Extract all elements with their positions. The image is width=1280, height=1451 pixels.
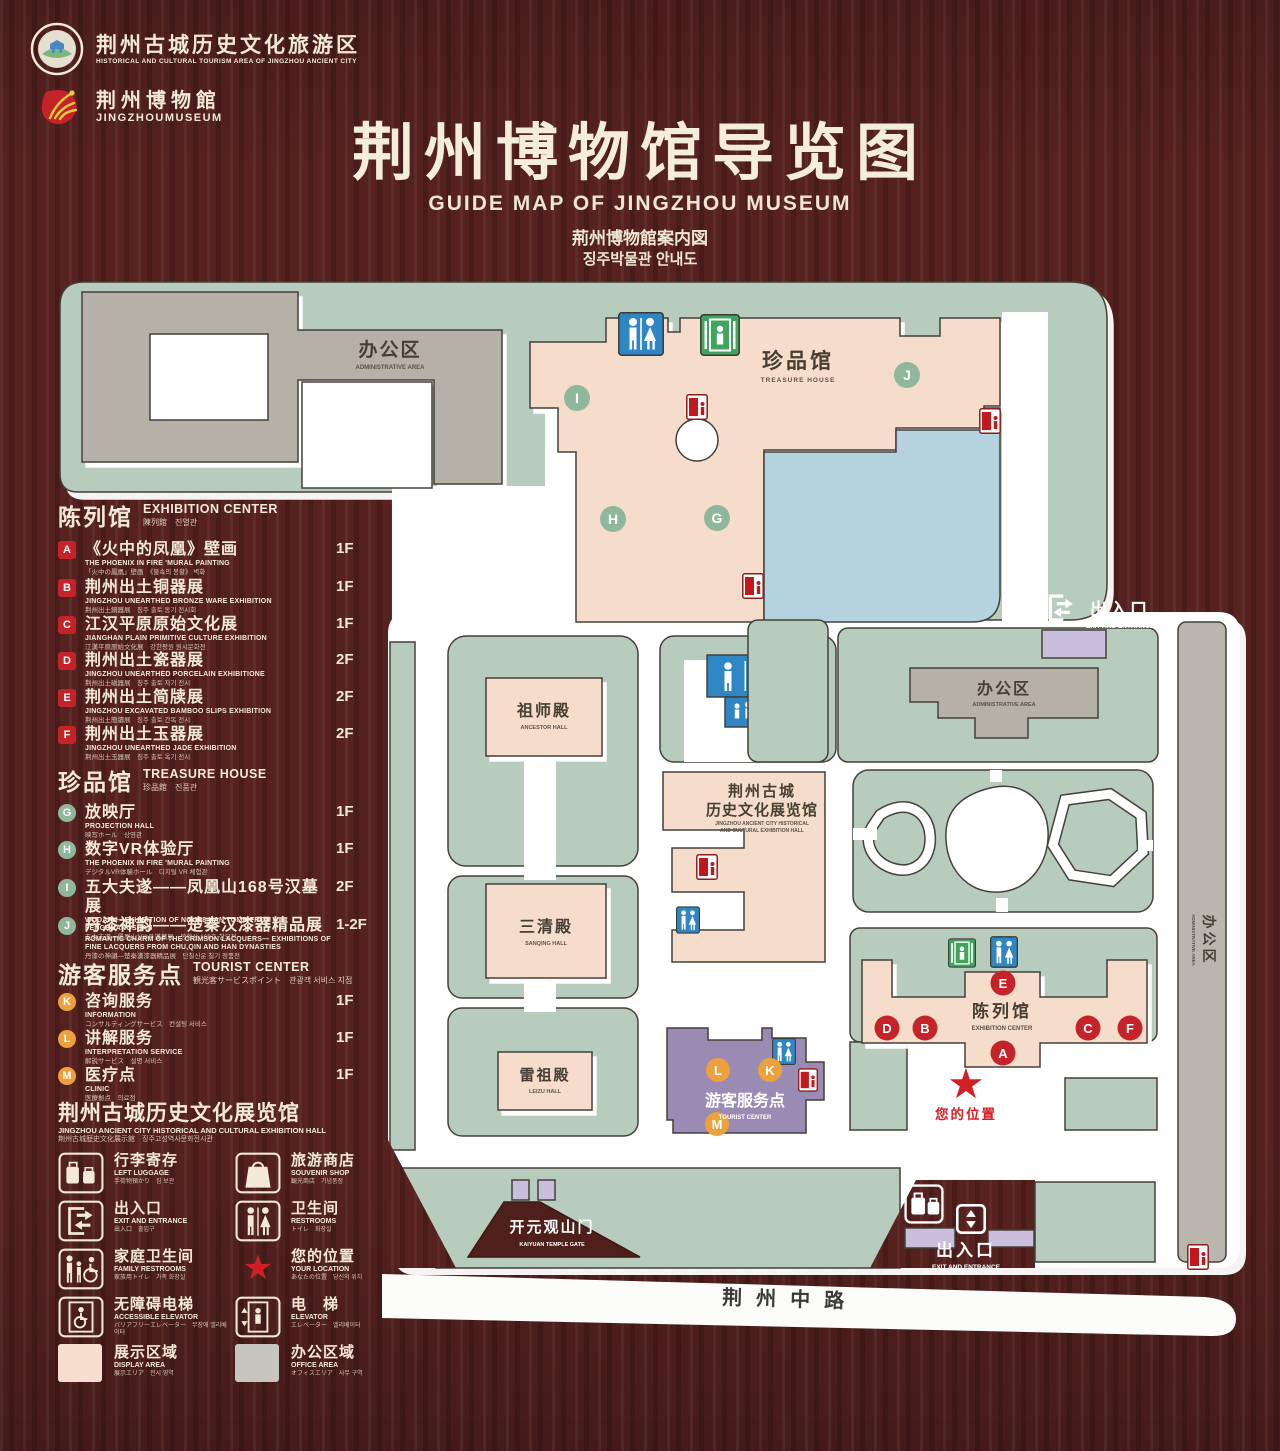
icon-sub: 手荷物預かり 짐 보관 (114, 1179, 228, 1186)
item-floor: 1F (336, 1066, 354, 1083)
museum-logo: 荆州博物館 JINGZHOUMUSEUM (36, 84, 223, 130)
item-text: 丹漆神韵——楚秦汉漆器精品展ROMANTIC CHARM OF THE CRIM… (85, 916, 331, 960)
legend-item-h: H 数字VR体验厅THE PHOENIX IN FIRE 'MURAL PAIN… (58, 840, 406, 876)
label-leizu-zh: 雷祖殿 (519, 1066, 570, 1084)
item-text: 咨询服务INFORMATIONコンサルティングサービス 컨설팅 서비스 (85, 992, 331, 1028)
elevator-icon-treasure-3 (743, 574, 763, 598)
label-tourist-en: TOURIST CENTER (719, 1115, 772, 1121)
item-en: THE PHOENIX IN FIRE 'MURAL PAINTING (85, 560, 331, 568)
item-floor: 2F (336, 878, 354, 895)
badge-k: K (58, 993, 76, 1011)
marker-G: G (704, 505, 730, 531)
museum-bird-emblem-icon (36, 84, 84, 130)
svg-text:G: G (712, 510, 723, 526)
legend-item-g: G 放映厅PROJECTION HALL映写ホール 상영관 1F (58, 803, 406, 839)
icon-zh: 家庭卫生间 (114, 1248, 228, 1266)
icon-en: EXIT AND ENTRANCE (114, 1218, 228, 1226)
item-text: 放映厅PROJECTION HALL映写ホール 상영관 (85, 803, 331, 839)
green-excenter-left (850, 1042, 907, 1130)
legend-item-a: A 《火中的凤凰》壁画THE PHOENIX IN FIRE 'MURAL PA… (58, 540, 406, 576)
svg-text:C: C (1083, 1021, 1093, 1036)
section-title-zh: 陈列馆 (58, 498, 133, 532)
marker-B: B (913, 1016, 938, 1041)
svg-text:F: F (1126, 1021, 1134, 1036)
label-admin-top-en: ADMINISTRATIVE AREA (356, 365, 426, 371)
elevator-icon-treasure-2 (980, 409, 1000, 433)
restroom-icon (235, 1200, 281, 1242)
legend-office-area: 办公区域OFFICE AREAオフィスエリア 사무 구역 (235, 1344, 405, 1378)
tourism-area-logo: 荆州古城历史文化旅游区 HISTORICAL AND CULTURAL TOUR… (30, 22, 360, 76)
item-en: ROMANTIC CHARM OF THE CRIMSON LACQUERS— … (85, 936, 331, 952)
icon-en: OFFICE AREA (291, 1362, 405, 1370)
icon-zh: 卫生间 (291, 1200, 405, 1218)
restroom-icon-hall (677, 907, 700, 933)
legend-panel: 陈列馆 EXHIBITION CENTER 陳列館 진열관 A 《火中的凤凰》壁… (58, 498, 406, 1398)
item-sub: 荆州出土玉器展 징주 출토 옥기 전시 (85, 754, 331, 761)
page-subtitle-kr: 징주박물관 안내도 (250, 248, 1030, 269)
item-text: 荆州出土铜器展JINGZHOU UNEARTHED BRONZE WARE EX… (85, 578, 331, 614)
svg-text:H: H (608, 511, 618, 527)
badge-e: E (58, 689, 76, 707)
legend-accessible-elevator: 无障碍电梯ACCESSIBLE ELEVATORバリアフリーエレベーター 무장애… (58, 1296, 228, 1337)
svg-text:ADMINISTRATIVE AREA: ADMINISTRATIVE AREA (1191, 914, 1196, 967)
label-leizu-en: LEIZU HALL (529, 1089, 562, 1095)
item-text: 江汉平原原始文化展JIANGHAN PLAIN PRIMITIVE CULTUR… (85, 615, 331, 651)
your-location-star-icon: ★ (235, 1248, 281, 1290)
icon-en: YOUR LOCATION (291, 1266, 405, 1274)
elevator-icon-treasure-1 (687, 395, 707, 419)
section-title-side: TREASURE HOUSE 珍品館 진품관 (143, 763, 267, 793)
label-hall-zh2: 历史文化展览馆 (706, 801, 818, 819)
item-en: JINGZHOU UNEARTHED BRONZE WARE EXHIBITIO… (85, 598, 331, 606)
item-floor: 2F (336, 688, 354, 705)
green-excenter-right (1065, 1078, 1157, 1130)
luggage-icon (58, 1152, 104, 1194)
entrance-gate-top (1042, 630, 1106, 658)
page-subtitle-jp: 荊州博物館案内図 (250, 224, 1030, 249)
legend-souvenir-shop: 旅游商店SOUVENIR SHOP観光商店 기념품점 (235, 1152, 405, 1186)
icon-sub: バリアフリーエレベーター 무장애 엘리베이터 (114, 1323, 228, 1337)
label-admin-top-zh: 办公区 (358, 338, 421, 361)
office-courtyard-2 (302, 382, 432, 488)
label-sanqing-zh: 三清殿 (519, 918, 573, 936)
badge-d: D (58, 652, 76, 670)
item-floor: 1F (336, 803, 354, 820)
legend-section-tourist-center: 游客服务点 TOURIST CENTER 観光客サービスポイント 관광객 서비스… (58, 956, 352, 990)
icon-item-text: 办公区域OFFICE AREAオフィスエリア 사무 구역 (291, 1344, 405, 1378)
item-zh: 江汉平原原始文化展 (85, 615, 331, 634)
item-zh: 放映厅 (85, 803, 331, 822)
item-text: 荆州出土玉器展JINGZHOU UNEARTHED JADE EXHIBITIO… (85, 725, 331, 761)
item-sub: 「火中の鳳凰」壁画 《불속의 봉황》 벽화 (85, 569, 331, 576)
section-title-sub: 珍品館 진품관 (143, 782, 267, 793)
tourism-area-name-zh: 荆州古城历史文化旅游区 (96, 34, 360, 58)
item-en: JINGZHOU EXCAVATED BAMBOO SLIPS EXHIBITI… (85, 708, 331, 716)
icon-en: FAMILY RESTROOMS (114, 1266, 228, 1274)
icon-sub: エレベーター 엘리베이터 (291, 1323, 405, 1330)
item-sub: 解説サービス 설명 서비스 (85, 1058, 331, 1065)
label-excenter-en: EXHIBITION CENTER (972, 1026, 1033, 1032)
hall-note-zh: 荆州古城历史文化展览馆 (58, 1102, 406, 1126)
elevator-icon-strip (1188, 1245, 1208, 1269)
icon-zh: 办公区域 (291, 1344, 405, 1362)
label-treasure-en: TREASURE HOUSE (761, 377, 836, 384)
item-floor: 2F (336, 725, 354, 742)
item-zh: 数字VR体验厅 (85, 840, 331, 859)
item-zh: 五大夫遂——凤凰山168号汉墓展 (85, 878, 331, 916)
label-exit-top-en: EXIT AND ENTRANCE (1086, 623, 1155, 630)
elevator-icon-excenter-green (949, 939, 976, 967)
legend-exit-entrance: 出入口EXIT AND ENTRANCE出入口 출입구 (58, 1200, 228, 1234)
museum-logo-text: 荆州博物館 JINGZHOUMUSEUM (96, 90, 223, 124)
svg-text:A: A (998, 1046, 1008, 1061)
path-courtyard-2 (524, 978, 556, 1012)
item-en: CLINIC (85, 1086, 331, 1094)
exit-icon (58, 1200, 104, 1242)
green-bottom-right (1035, 1182, 1155, 1262)
icon-item-text: 行李寄存LEFT LUGGAGE手荷物預かり 짐 보관 (114, 1152, 228, 1186)
svg-text:J: J (903, 367, 911, 383)
svg-text:L: L (714, 1063, 722, 1078)
legend-item-l: L 讲解服务INTERPRETATION SERVICE解説サービス 설명 서비… (58, 1029, 406, 1065)
icon-sub: トイレ 화장실 (291, 1227, 405, 1234)
item-zh: 丹漆神韵——楚秦汉漆器精品展 (85, 916, 331, 935)
icon-item-text: 展示区域DISPLAY AREA展示エリア 전시 영역 (114, 1344, 228, 1378)
hall-note-en: JINGZHOU ANCIENT CITY HISTORICAL AND CUL… (58, 1126, 406, 1135)
item-floor: 1F (336, 840, 354, 857)
icon-zh: 展示区域 (114, 1344, 228, 1362)
legend-section-exhibition-center: 陈列馆 EXHIBITION CENTER 陳列館 진열관 (58, 498, 278, 532)
shop-icon (235, 1152, 281, 1194)
label-excenter-zh: 陈列馆 (972, 1001, 1032, 1021)
svg-text:I: I (575, 390, 579, 406)
office-area-swatch (235, 1344, 281, 1386)
icon-sub: 観光商店 기념품점 (291, 1179, 405, 1186)
elevator-icon-tourist (799, 1069, 818, 1091)
tourism-area-emblem-icon (30, 22, 84, 76)
marker-I: I (564, 385, 590, 411)
icon-en: DISPLAY AREA (114, 1362, 228, 1370)
label-ancestor-en: ANCESTOR HALL (521, 725, 569, 731)
item-en: INTERPRETATION SERVICE (85, 1049, 331, 1057)
badge-c: C (58, 616, 76, 634)
museum-name-en: JINGZHOUMUSEUM (96, 112, 223, 124)
marker-D: D (875, 1016, 900, 1041)
section-title-sub: 陳列館 진열관 (143, 517, 278, 528)
office-courtyard-1 (150, 334, 268, 420)
svg-text:B: B (920, 1021, 929, 1036)
icon-sub: あなたの位置 당신의 위치 (291, 1275, 405, 1282)
legend-elevator: 电 梯ELEVATORエレベーター 엘리베이터 (235, 1296, 405, 1330)
marker-L: L (706, 1058, 730, 1082)
legend-item-j: J 丹漆神韵——楚秦汉漆器精品展ROMANTIC CHARM OF THE CR… (58, 916, 406, 960)
label-admin-strip: 办公区 ADMINISTRATIVE AREA (1191, 914, 1217, 967)
green-pad-a (748, 620, 828, 762)
label-ancestor-zh: 祖师殿 (516, 701, 571, 720)
path-white-right-of-pond (1002, 312, 1048, 622)
icon-sub: 家族用トイレ 가족 화장실 (114, 1275, 228, 1282)
legend-hall-note: 荆州古城历史文化展览馆 JINGZHOU ANCIENT CITY HISTOR… (58, 1102, 406, 1144)
tourism-area-logo-text: 荆州古城历史文化旅游区 HISTORICAL AND CULTURAL TOUR… (96, 34, 360, 65)
icon-zh: 出入口 (114, 1200, 228, 1218)
legend-restrooms: 卫生间RESTROOMSトイレ 화장실 (235, 1200, 405, 1234)
item-text: 医疗点CLINIC医療拠点 의료점 (85, 1066, 331, 1102)
section-title-en: TREASURE HOUSE (143, 767, 267, 781)
elevator-icon (235, 1296, 281, 1338)
item-zh: 咨询服务 (85, 992, 331, 1011)
label-treasure-zh: 珍品馆 (762, 349, 834, 373)
item-floor: 1F (336, 540, 354, 557)
svg-text:D: D (882, 1021, 891, 1036)
icon-sub: オフィスエリア 사무 구역 (291, 1371, 405, 1378)
icon-zh: 旅游商店 (291, 1152, 405, 1170)
icon-sub: 展示エリア 전시 영역 (114, 1371, 228, 1378)
legend-item-e: E 荆州出土简牍展JINGZHOU EXCAVATED BAMBOO SLIPS… (58, 688, 406, 724)
svg-text:办公区: 办公区 (1201, 915, 1217, 966)
legend-section-treasure-house: 珍品馆 TREASURE HOUSE 珍品館 진품관 (58, 763, 267, 797)
icon-sub: 出入口 출입구 (114, 1227, 228, 1234)
tourism-area-name-en: HISTORICAL AND CULTURAL TOURISM AREA OF … (96, 58, 360, 65)
marker-F: F (1118, 1016, 1143, 1041)
icon-item-text: 家庭卫生间FAMILY RESTROOMS家族用トイレ 가족 화장실 (114, 1248, 228, 1282)
family-restroom-icon (58, 1248, 104, 1290)
legend-your-location: ★ 您的位置YOUR LOCATIONあなたの位置 당신의 위치 (235, 1248, 405, 1282)
label-exit-top-zh: 出入口 (1090, 599, 1150, 619)
legend-display-area: 展示区域DISPLAY AREA展示エリア 전시 영역 (58, 1344, 228, 1378)
gate-block-1 (512, 1180, 529, 1200)
item-sub: コンサルティングサービス 컨설팅 서비스 (85, 1021, 331, 1028)
item-sub: デジタルVR体験ホール 디지털 VR 체험관 (85, 869, 331, 876)
page-title: 荆州博物馆导览图 (250, 102, 1030, 192)
badge-m: M (58, 1067, 76, 1085)
legend-item-d: D 荆州出土瓷器展JINGZHOU UNEARTHED PORCELAIN EX… (58, 651, 406, 687)
section-title-zh: 游客服务点 (58, 956, 183, 990)
item-sub: 江漢平原原始文化展 강한평원 원시문화전 (85, 644, 331, 651)
badge-i: I (58, 879, 76, 897)
item-floor: 2F (336, 651, 354, 668)
item-floor: 1F (336, 615, 354, 632)
gate-green-band (392, 1168, 900, 1268)
item-floor: 1F (336, 1029, 354, 1046)
legend-item-c: C 江汉平原原始文化展JIANGHAN PLAIN PRIMITIVE CULT… (58, 615, 406, 651)
marker-E: E (991, 971, 1016, 996)
item-text: 荆州出土瓷器展JINGZHOU UNEARTHED PORCELAIN EXHI… (85, 651, 331, 687)
svg-text:K: K (765, 1063, 775, 1078)
item-en: JINGZHOU UNEARTHED PORCELAIN EXHIBITIONE (85, 671, 331, 679)
label-admin-right-zh: 办公区 (977, 679, 1031, 698)
label-sanqing-en: SANQING HALL (525, 941, 568, 947)
section-title-en: EXHIBITION CENTER (143, 502, 278, 516)
path-courtyard-1 (524, 758, 556, 880)
item-en: JINGZHOU UNEARTHED JADE EXHIBITION (85, 745, 331, 753)
page-subtitle-en: GUIDE MAP OF JINGZHOU MUSEUM (250, 192, 1030, 216)
badge-g: G (58, 804, 76, 822)
label-hall-en2: AND CULTURAL EXHIBITION HALL (720, 828, 804, 834)
item-zh: 《火中的凤凰》壁画 (85, 540, 331, 559)
hall-note-text: 荆州古城历史文化展览馆 JINGZHOU ANCIENT CITY HISTOR… (58, 1102, 406, 1144)
hall-note-sub: 荆州古城歴史文化展示館 징주고성역사문화전시관 (58, 1136, 406, 1144)
display-area-swatch (58, 1344, 104, 1386)
item-en: PROJECTION HALL (85, 823, 331, 831)
item-sub: 医療拠点 의료점 (85, 1095, 331, 1102)
elevator-icon-treasure-green (701, 315, 739, 355)
section-title-side: EXHIBITION CENTER 陳列館 진열관 (143, 498, 278, 528)
marker-J: J (894, 362, 920, 388)
badge-h: H (58, 841, 76, 859)
item-text: 《火中的凤凰》壁画THE PHOENIX IN FIRE 'MURAL PAIN… (85, 540, 331, 576)
plaza-white (392, 486, 560, 622)
item-text: 讲解服务INTERPRETATION SERVICE解説サービス 설명 서비스 (85, 1029, 331, 1065)
museum-name-zh: 荆州博物館 (96, 90, 223, 112)
icon-item-text: 无障碍电梯ACCESSIBLE ELEVATORバリアフリーエレベーター 무장애… (114, 1296, 228, 1337)
label-gate-en: KAIYUAN TEMPLE GATE (519, 1242, 585, 1248)
icon-zh: 行李寄存 (114, 1152, 228, 1170)
item-zh: 医疗点 (85, 1066, 331, 1085)
legend-family-restrooms: 家庭卫生间FAMILY RESTROOMS家族用トイレ 가족 화장실 (58, 1248, 228, 1282)
marker-A: A (991, 1041, 1016, 1066)
legend-item-b: B 荆州出土铜器展JINGZHOU UNEARTHED BRONZE WARE … (58, 578, 406, 614)
icon-en: RESTROOMS (291, 1218, 405, 1226)
badge-a: A (58, 541, 76, 559)
item-zh: 荆州出土简牍展 (85, 688, 331, 707)
restroom-icon-treasure (619, 313, 663, 355)
elevator-icon-hall (697, 855, 717, 879)
icon-en: ELEVATOR (291, 1314, 405, 1322)
label-exit-bottom-zh: 出入口 (936, 1240, 996, 1260)
label-gate-zh: 开元观山门 (509, 1218, 594, 1236)
item-zh: 荆州出土铜器展 (85, 578, 331, 597)
item-en: JIANGHAN PLAIN PRIMITIVE CULTURE EXHIBIT… (85, 635, 331, 643)
label-hall-zh1: 荆州古城 (728, 782, 796, 800)
icon-item-text: 电 梯ELEVATORエレベーター 엘리베이터 (291, 1296, 405, 1330)
item-floor: 1-2F (336, 916, 367, 933)
icon-en: SOUVENIR SHOP (291, 1170, 405, 1178)
icon-en: ACCESSIBLE ELEVATOR (114, 1314, 228, 1322)
restroom-icon-excenter (991, 937, 1018, 967)
legend-left-luggage: 行李寄存LEFT LUGGAGE手荷物預かり 짐 보관 (58, 1152, 228, 1186)
section-title-sub: 観光客サービスポイント 관광객 서비스 지점 (193, 975, 352, 986)
icon-zh: 电 梯 (291, 1296, 405, 1314)
label-your-location: 您的位置 (935, 1106, 997, 1122)
item-en: THE PHOENIX IN FIRE 'MURAL PAINTING (85, 860, 331, 868)
item-floor: 1F (336, 992, 354, 1009)
icon-item-text: 旅游商店SOUVENIR SHOP観光商店 기념품점 (291, 1152, 405, 1186)
svg-text:E: E (999, 976, 1008, 991)
label-admin-right-en: ADMINISTRATIVE AREA (972, 702, 1035, 708)
label-tourist-zh: 游客服务点 (705, 1091, 785, 1110)
badge-f: F (58, 726, 76, 744)
item-sub: 荆州出土簡牘展 징주 출토 간독 전시 (85, 717, 331, 724)
marker-H: H (600, 506, 626, 532)
label-exit-bottom-en: EXIT AND ENTRANCE (932, 1264, 1001, 1271)
label-hall-en1: JINGZHOU ANCIENT CITY HISTORICAL (715, 821, 809, 827)
marker-K: K (758, 1058, 782, 1082)
item-zh: 荆州出土玉器展 (85, 725, 331, 744)
badge-l: L (58, 1030, 76, 1048)
item-sub: 荆州出土銅器展 징주 출토 동기 전시회 (85, 607, 331, 614)
marker-C: C (1076, 1016, 1101, 1041)
item-sub: 荆州出土磁器展 징주 출토 자기 전시 (85, 680, 331, 687)
accessible-elevator-icon (58, 1296, 104, 1338)
icon-zh: 无障碍电梯 (114, 1296, 228, 1314)
item-floor: 1F (336, 578, 354, 595)
icon-item-text: 您的位置YOUR LOCATIONあなたの位置 당신의 위치 (291, 1248, 405, 1282)
item-sub: 映写ホール 상영관 (85, 832, 331, 839)
treasure-courtyard-circle (676, 419, 718, 461)
icon-en: LEFT LUGGAGE (114, 1170, 228, 1178)
legend-item-f: F 荆州出土玉器展JINGZHOU UNEARTHED JADE EXHIBIT… (58, 725, 406, 761)
legend-item-k: K 咨询服务INFORMATIONコンサルティングサービス 컨설팅 서비스 1F (58, 992, 406, 1028)
item-zh: 讲解服务 (85, 1029, 331, 1048)
item-text: 荆州出土简牍展JINGZHOU EXCAVATED BAMBOO SLIPS E… (85, 688, 331, 724)
your-location-star: ★ (947, 1060, 985, 1107)
section-title-zh: 珍品馆 (58, 763, 133, 797)
icon-item-text: 卫生间RESTROOMSトイレ 화장실 (291, 1200, 405, 1234)
badge-b: B (58, 579, 76, 597)
badge-j: J (58, 917, 76, 935)
legend-item-m: M 医疗点CLINIC医療拠点 의료점 1F (58, 1066, 406, 1102)
gate-block-2 (538, 1180, 555, 1200)
icon-item-text: 出入口EXIT AND ENTRANCE出入口 출입구 (114, 1200, 228, 1234)
section-title-side: TOURIST CENTER 観光客サービスポイント 관광객 서비스 지점 (193, 956, 352, 986)
item-zh: 荆州出土瓷器展 (85, 651, 331, 670)
section-title-en: TOURIST CENTER (193, 960, 352, 974)
icon-zh: 您的位置 (291, 1248, 405, 1266)
item-text: 数字VR体验厅THE PHOENIX IN FIRE 'MURAL PAINTI… (85, 840, 331, 876)
item-en: INFORMATION (85, 1012, 331, 1020)
